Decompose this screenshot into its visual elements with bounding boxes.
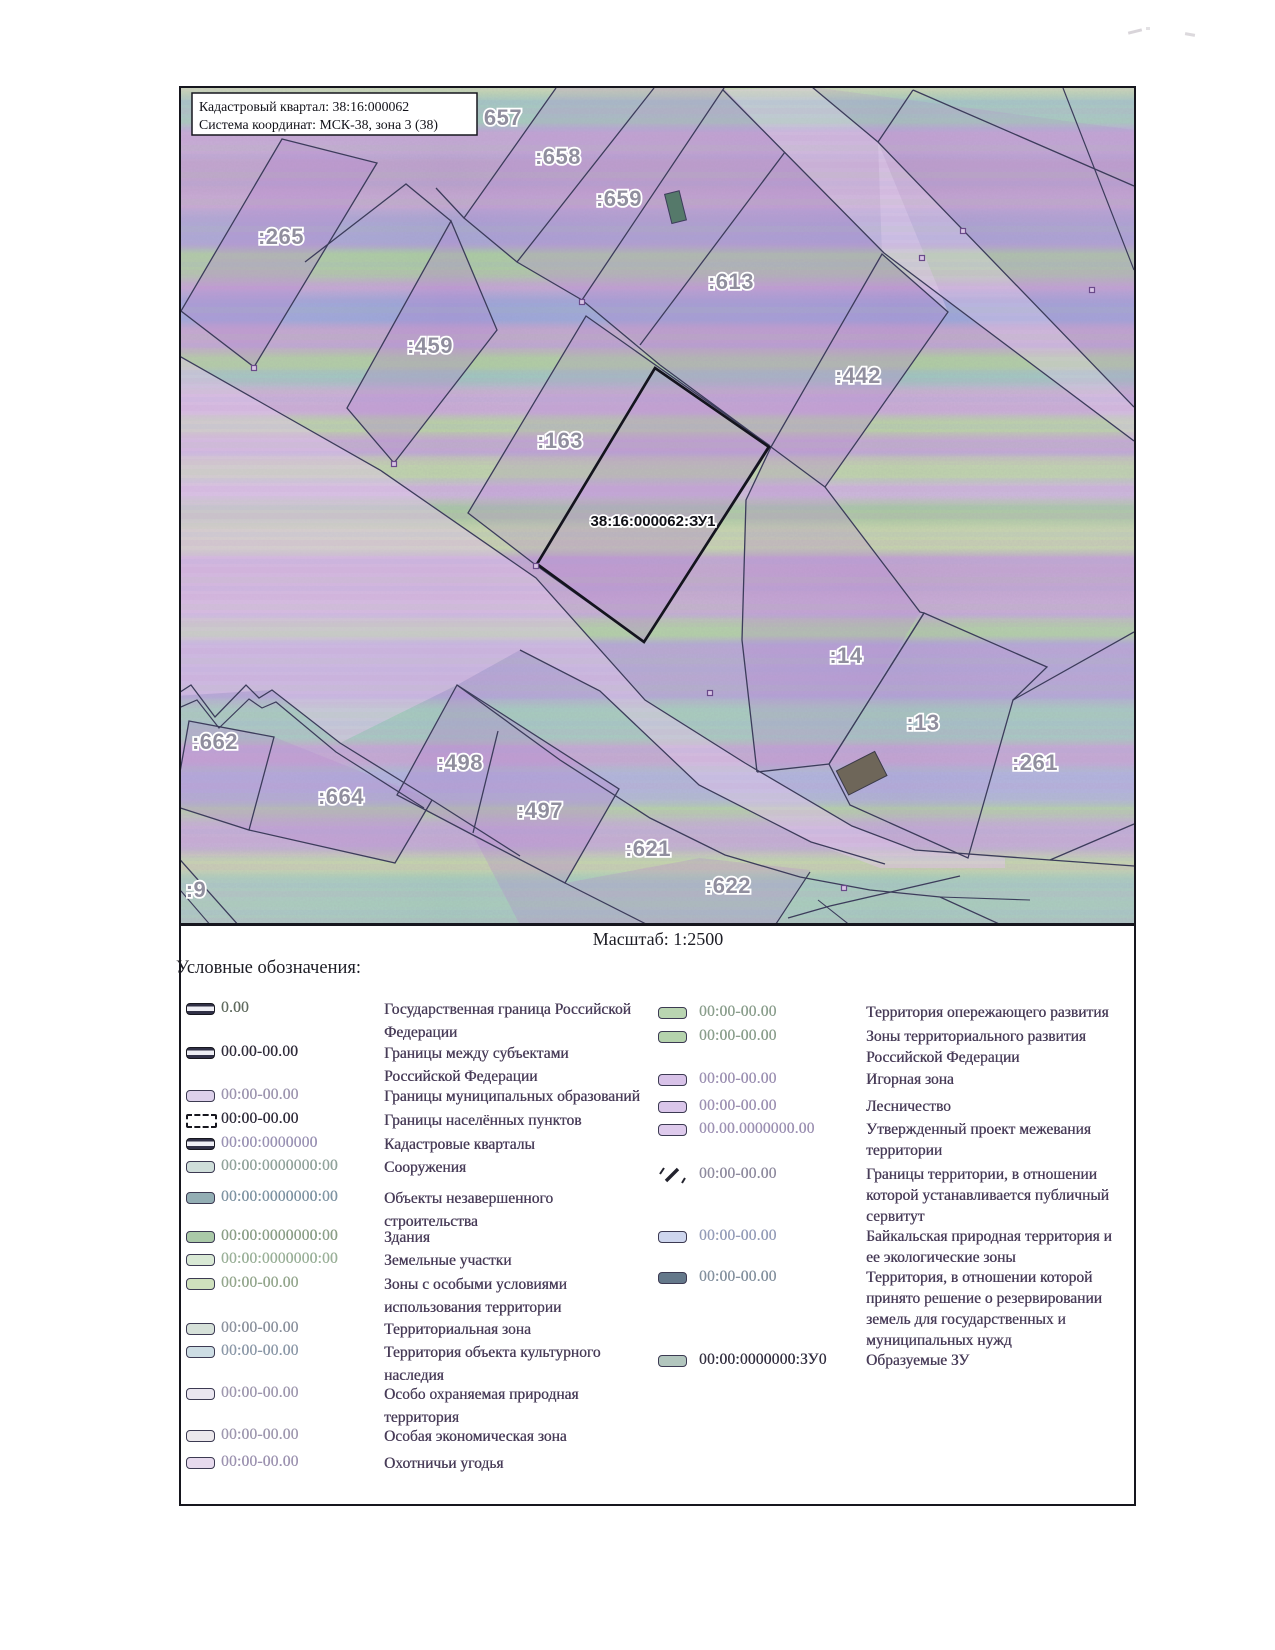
svg-text::659: :659	[596, 186, 642, 211]
svg-text::622: :622	[705, 873, 751, 898]
svg-text::261: :261	[1012, 750, 1058, 775]
svg-text::662: :662	[192, 729, 238, 754]
svg-text::14: :14	[829, 643, 863, 668]
svg-text::265: :265	[258, 224, 304, 249]
svg-text::621: :621	[625, 836, 671, 861]
svg-text::9: :9	[186, 877, 207, 902]
svg-text:Система координат: МСК-38, зон: Система координат: МСК-38, зона 3 (38)	[199, 117, 438, 133]
svg-text::613: :613	[708, 269, 754, 294]
svg-text::13: :13	[906, 710, 939, 735]
svg-text::459: :459	[407, 333, 453, 358]
svg-text::442: :442	[835, 363, 881, 388]
svg-text:Кадастровый квартал: 38:16:000: Кадастровый квартал: 38:16:000062	[199, 99, 409, 114]
svg-text:657: 657	[484, 105, 522, 130]
svg-text::163: :163	[537, 428, 583, 453]
svg-text:38:16:000062:ЗУ1: 38:16:000062:ЗУ1	[591, 513, 716, 530]
svg-text::658: :658	[535, 144, 581, 169]
svg-text::664: :664	[318, 784, 364, 809]
svg-text::497: :497	[517, 798, 563, 823]
svg-text::498: :498	[437, 750, 483, 775]
